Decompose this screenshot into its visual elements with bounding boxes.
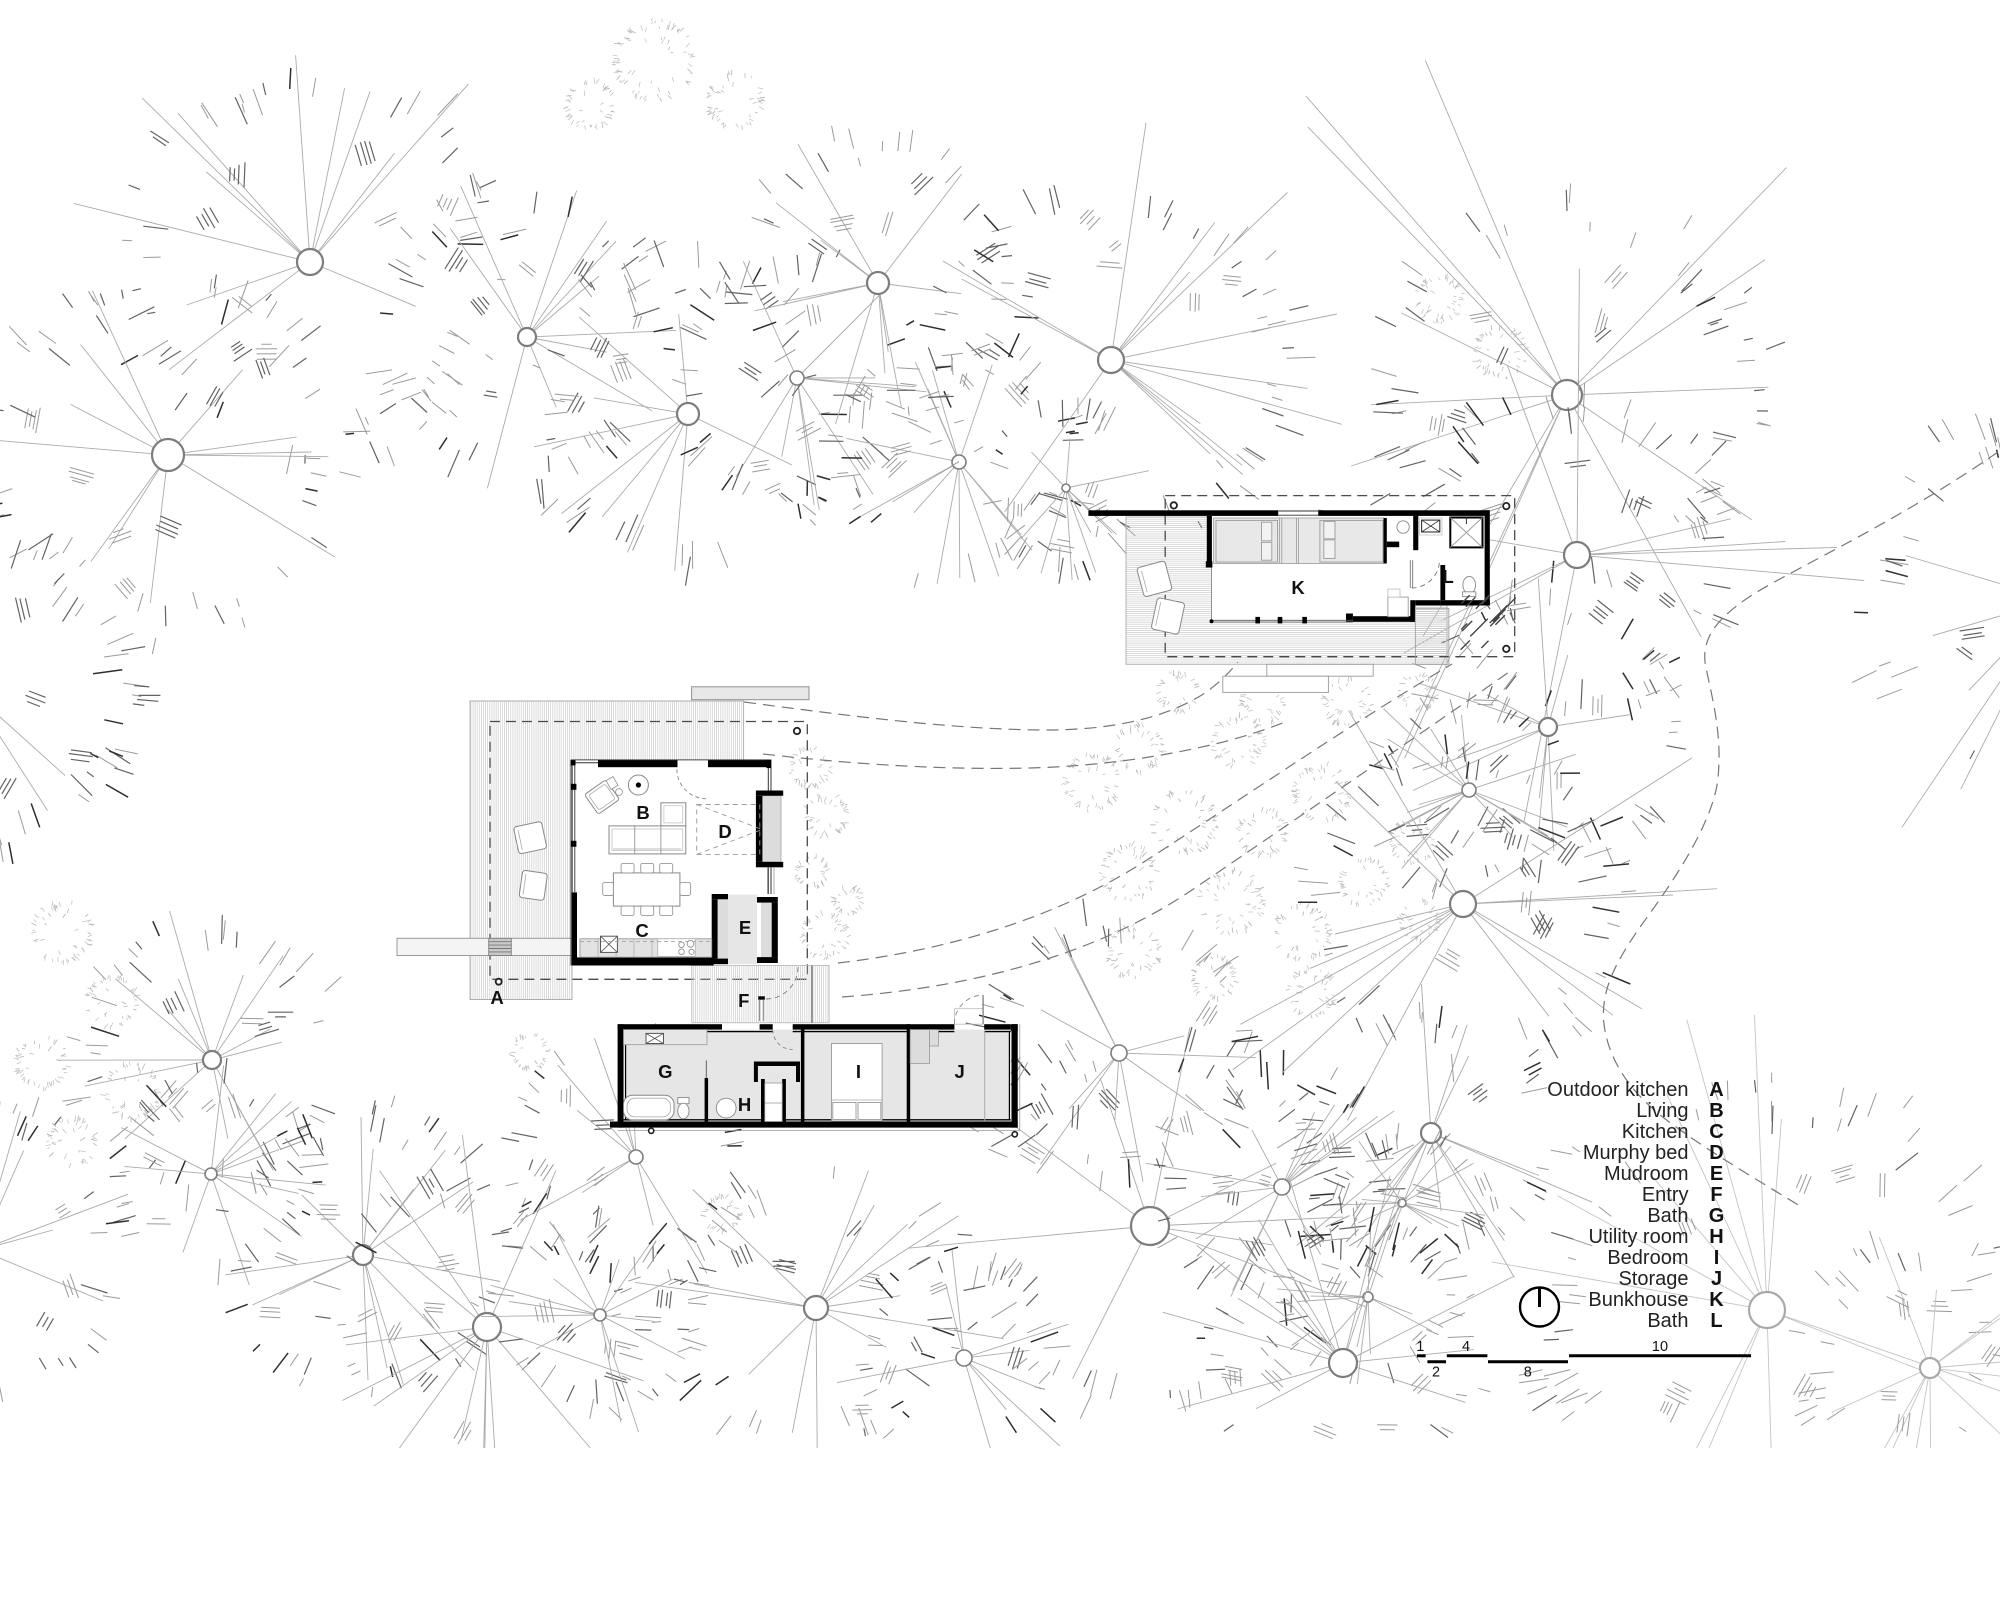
svg-text:K: K [1291, 577, 1305, 598]
svg-text:B: B [1709, 1100, 1723, 1122]
svg-text:I: I [856, 1061, 861, 1082]
svg-text:F: F [738, 990, 749, 1011]
svg-text:A: A [1709, 1079, 1723, 1101]
svg-text:E: E [1710, 1163, 1723, 1185]
svg-text:L: L [1710, 1310, 1722, 1332]
svg-text:Utility room: Utility room [1588, 1226, 1688, 1248]
svg-text:H: H [738, 1094, 751, 1115]
svg-text:Kitchen: Kitchen [1622, 1121, 1689, 1143]
svg-text:F: F [1710, 1184, 1722, 1206]
svg-text:H: H [1709, 1226, 1723, 1248]
svg-text:G: G [658, 1061, 672, 1082]
svg-text:Storage: Storage [1618, 1268, 1688, 1290]
svg-text:Mudroom: Mudroom [1604, 1163, 1688, 1185]
svg-text:Murphy bed: Murphy bed [1583, 1142, 1689, 1164]
svg-text:K: K [1709, 1289, 1724, 1311]
svg-text:8: 8 [1524, 1365, 1532, 1381]
svg-text:Bath: Bath [1647, 1310, 1688, 1332]
svg-text:A: A [490, 987, 503, 1008]
svg-text:B: B [636, 802, 649, 823]
svg-text:J: J [1711, 1268, 1722, 1290]
svg-text:Bunkhouse: Bunkhouse [1588, 1289, 1688, 1311]
svg-text:E: E [739, 917, 751, 938]
svg-text:J: J [954, 1061, 964, 1082]
svg-text:D: D [718, 821, 731, 842]
svg-text:Outdoor kitchen: Outdoor kitchen [1547, 1079, 1688, 1101]
svg-text:C: C [1709, 1121, 1723, 1143]
svg-text:10: 10 [1652, 1339, 1668, 1355]
svg-text:4: 4 [1462, 1339, 1470, 1355]
svg-text:I: I [1714, 1247, 1720, 1269]
svg-text:Living: Living [1636, 1100, 1688, 1122]
svg-text:G: G [1709, 1205, 1725, 1227]
svg-text:Bedroom: Bedroom [1607, 1247, 1688, 1269]
svg-text:Entry: Entry [1642, 1184, 1689, 1206]
svg-text:C: C [635, 920, 648, 941]
svg-text:Bath: Bath [1647, 1205, 1688, 1227]
svg-text:1: 1 [1416, 1339, 1424, 1355]
svg-text:2: 2 [1432, 1365, 1440, 1381]
svg-text:D: D [1709, 1142, 1723, 1164]
svg-text:L: L [1443, 566, 1454, 587]
